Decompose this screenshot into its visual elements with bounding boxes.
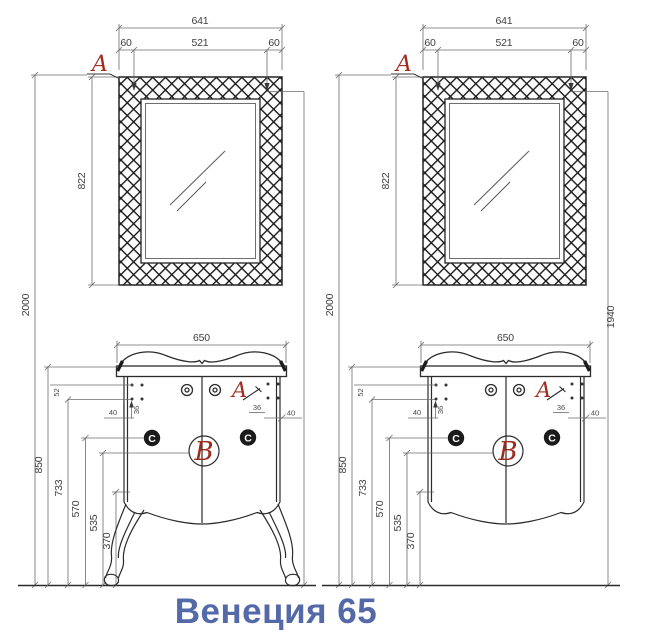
wall-hung-variant: 1940 — [322, 15, 620, 588]
vanity-technical-drawing: 641 60 521 60 822 2000 A — [0, 0, 657, 637]
floor-standing-cabinet — [18, 332, 316, 588]
wall-hung-mirror — [324, 15, 611, 588]
floor-standing-variant — [18, 15, 316, 588]
floor-standing-mirror — [20, 15, 307, 588]
product-title: Венеция 65 — [175, 592, 377, 631]
dim-glass-top-height: 1940 — [605, 305, 617, 328]
wall-hung-cabinet — [322, 332, 620, 588]
right-leg — [260, 504, 300, 586]
technical-drawing-page: 641 60 521 60 822 2000 A — [0, 0, 657, 637]
